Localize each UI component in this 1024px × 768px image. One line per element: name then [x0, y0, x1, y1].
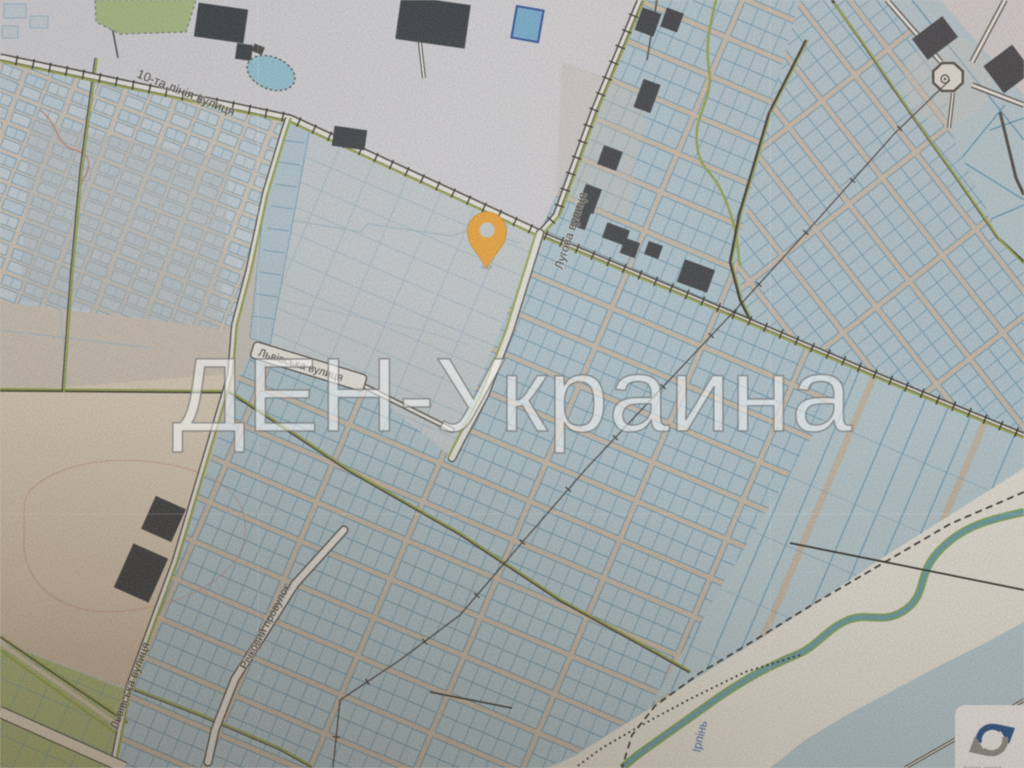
svg-text:ДЕН-Украина: ДЕН-Украина [172, 337, 853, 454]
